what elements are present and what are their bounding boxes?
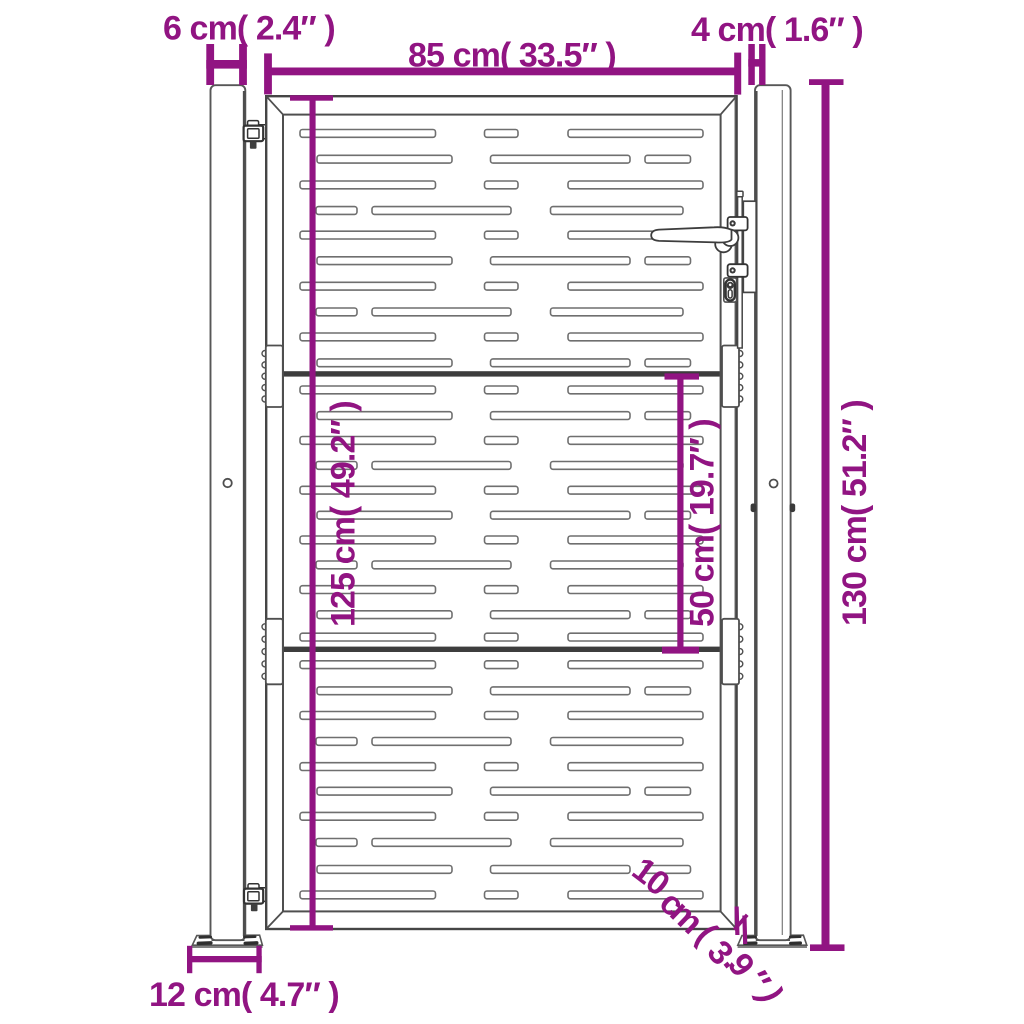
svg-text:12 cm( 4.7″ ): 12 cm( 4.7″ ): [149, 976, 339, 1014]
svg-text:130 cm( 51.2″ ): 130 cm( 51.2″ ): [836, 400, 874, 626]
svg-text:6 cm( 2.4″ ): 6 cm( 2.4″ ): [163, 10, 335, 48]
svg-text:85 cm( 33.5″ ): 85 cm( 33.5″ ): [408, 36, 616, 74]
svg-text:4 cm( 1.6″ ): 4 cm( 1.6″ ): [691, 11, 863, 49]
svg-text:125 cm( 49.2″ ): 125 cm( 49.2″ ): [325, 401, 363, 627]
svg-text:50 cm( 19.7″ ): 50 cm( 19.7″ ): [684, 419, 722, 627]
